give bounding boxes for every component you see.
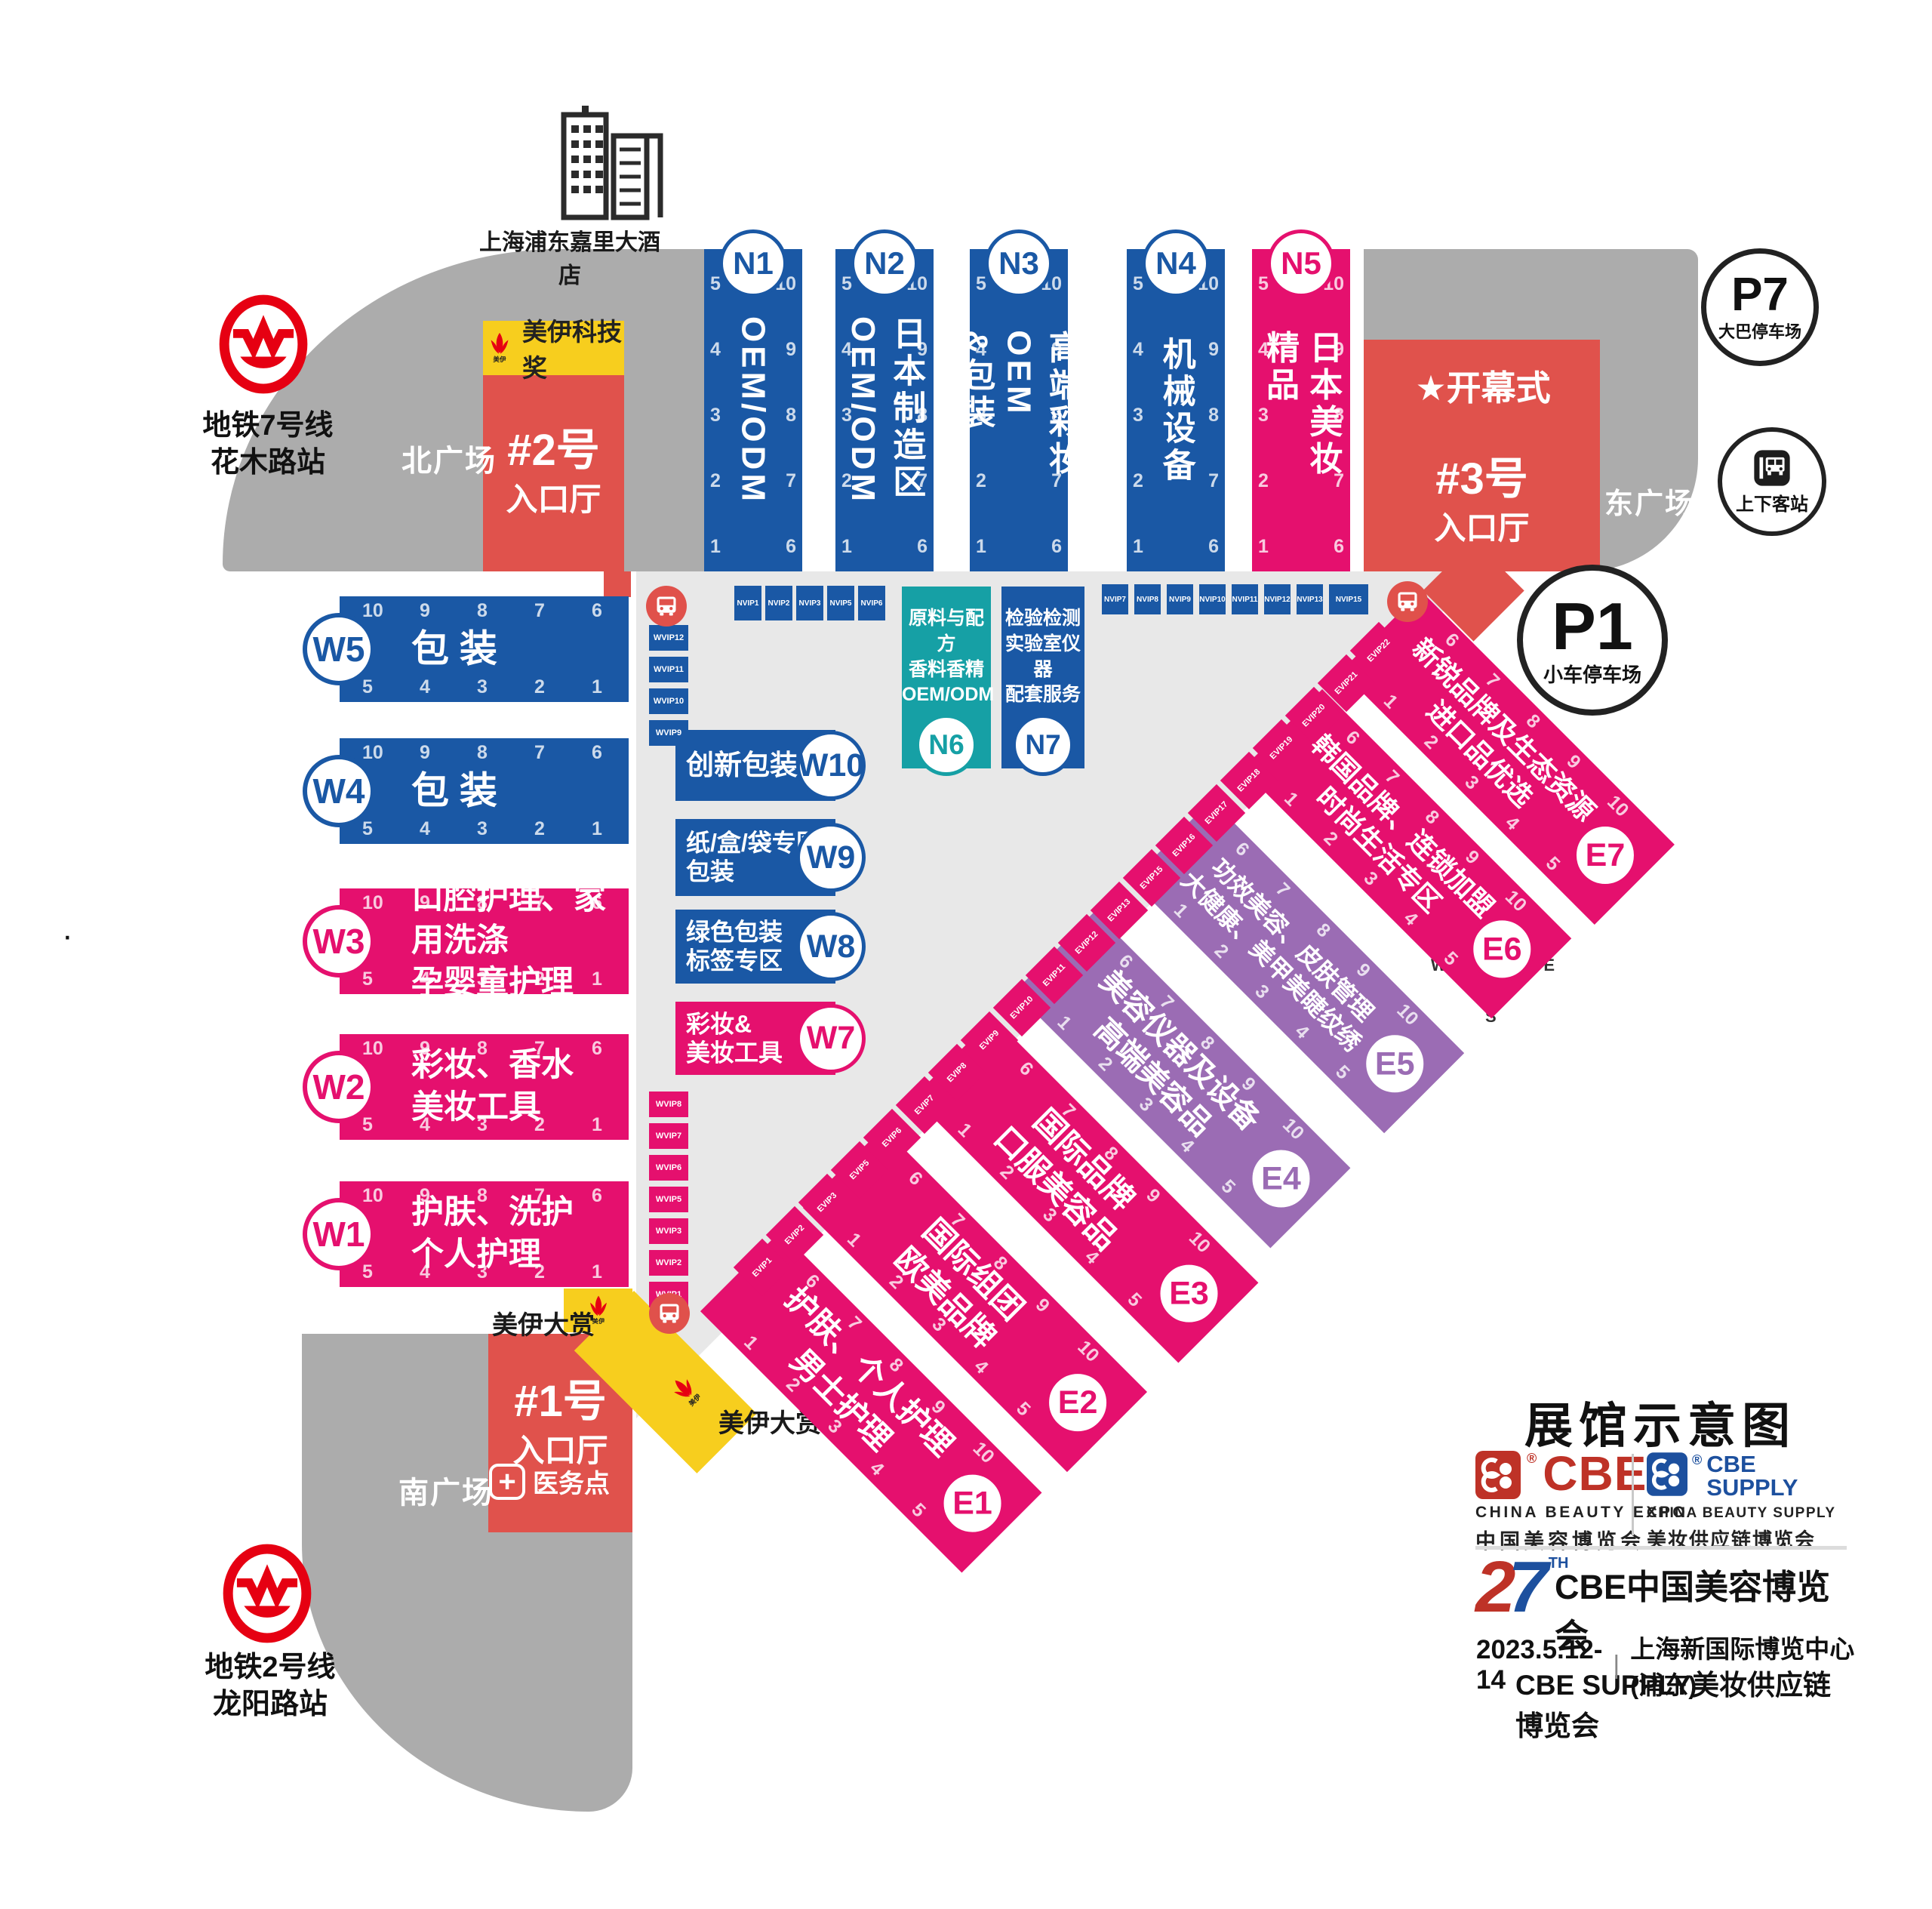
gate-number: 1 [1279,788,1302,811]
entrance-3-number: #3号 [1364,457,1600,503]
logo-divider [1632,1454,1634,1535]
gate-number: 8 [1420,806,1443,829]
hall-E6-badge: E6 [1469,916,1534,981]
hall-E1-badge: E1 [940,1471,1005,1536]
hall-E2-badge: E2 [1045,1370,1110,1435]
vip-NVIP5: NVIP5 [827,586,854,620]
gate-number: 9 [1334,339,1344,361]
gate-number: 8 [1312,919,1334,942]
gate-number: 5 [1541,852,1564,875]
gate-number: 1 [592,1114,602,1136]
gate-number: 9 [420,742,430,764]
hall-N1-label-line: OEM/ODM [731,316,774,504]
gate-number: 3 [976,405,986,426]
hall-W8-label: 绿色包装标签专区 [686,918,783,976]
gate-number: 1 [592,676,602,698]
gate-number: 2 [1210,940,1232,962]
hall-W1-label-line: 个人护理 [411,1234,574,1276]
hall-W3-label: 口腔护理、家用洗涤孕婴童护理 [411,878,629,1005]
hall-E3-badge: E3 [1157,1261,1222,1326]
parking-p7-code: P7 [1731,272,1789,319]
gate-number: 7 [917,470,928,492]
hall-W5-label-line: 包 装 [411,625,497,674]
gate-number: 3 [1251,981,1273,1003]
entrance-hall-2: #2号 入口厅 [483,375,624,571]
hall-N5-label-line: 日本美妆精品 [1258,330,1344,491]
meiyi-award-label: 美伊科技奖 [522,312,624,384]
gate-number: 2 [710,470,721,492]
hall-E7-badge: E7 [1573,823,1638,888]
gate-number: 6 [917,536,928,558]
gate-number: 4 [1258,339,1269,361]
vip-NVIP3: NVIP3 [796,586,823,620]
hall-W8-badge: W8 [796,912,866,981]
north-plaza-label: 北广场 [401,436,497,480]
metro-line7-line: 地铁7号线 [170,408,366,445]
gate-number: 4 [841,339,852,361]
hall-E4-badge: E4 [1248,1147,1313,1212]
hall-W8-label-line: 标签专区 [686,947,783,975]
vip-WVIP11: WVIP11 [649,657,688,682]
gate-number: 3 [710,405,721,426]
hall-W7-label: 彩妆&美妆工具 [686,1009,783,1067]
gate-number: 5 [1331,1061,1353,1084]
gate-number: 1 [841,536,852,558]
hall-N4-label: 机械设备 [1154,337,1197,485]
hall-W4-label: 包 装 [411,767,497,816]
shuttle-bus-icon [1387,581,1428,622]
hall-W2-label-line: 彩妆、香水 [411,1045,574,1087]
hall-N4-badge: N4 [1142,229,1210,297]
hall-W10: 创新包装W10 [675,730,835,801]
hall-N3: 高端彩妆OEM&包装54321109876N3 [970,249,1068,571]
gate-number: 4 [1500,812,1523,835]
gate-number: 10 [362,892,383,914]
gate-number: 5 [1133,273,1143,295]
gate-number: 7 [534,742,545,764]
east-plaza-label: 东广场 [1604,480,1695,522]
hall-N7-label-line: 检验检测 [1001,606,1084,632]
gate-number: 1 [1258,536,1269,558]
hall-W4-badge: W4 [303,755,375,827]
hall-N1: OEM/ODM54321109876N1 [704,249,802,571]
gate-number: 4 [1291,1021,1313,1043]
entrance-2-number: #2号 [483,428,624,474]
gate-number: 6 [1440,629,1463,651]
vip-WVIP9: WVIP9 [649,720,688,746]
entrance-2-label: 入口厅 [483,474,624,520]
hall-W3: 10987654321口腔护理、家用洗涤孕婴童护理W3 [340,888,629,994]
gate-number: 5 [1439,947,1462,970]
parking-p7-label: 大巴停车场 [1718,319,1801,343]
gate-number: 9 [1460,846,1483,869]
gate-number: 8 [1051,405,1062,426]
vip-NVIP1: NVIP1 [734,586,761,620]
cbe-supply-logo: ® CBE SUPPLY CHINA BEAUTY SUPPLY 美妆供应链博览… [1647,1452,1836,1553]
gate-number: 10 [362,600,383,622]
vip-NVIP2: NVIP2 [765,586,792,620]
hall-N2-label: 日本制造区OEM/ODM [841,316,928,504]
hall-N2-badge: N2 [851,229,918,297]
vip-NVIP7: NVIP7 [1102,584,1128,614]
gate-number: 6 [1341,726,1364,749]
hall-E5-badge: E5 [1362,1031,1427,1096]
pickup-label: 上下客站 [1736,489,1808,516]
medical-cross-icon: + [489,1464,525,1500]
vip-WVIP3: WVIP3 [649,1218,688,1244]
gate-number: 6 [1051,536,1062,558]
metro-line7-station: 花木路站 [170,445,366,482]
gate-number: 1 [976,536,986,558]
gate-number: 3 [477,818,488,840]
hall-W1-badge: W1 [303,1198,375,1270]
hall-W1-label-line: 护肤、洗护 [411,1192,574,1234]
gate-number: 5 [710,273,721,295]
hall-N6-label-line: 香料香精 [902,657,991,683]
vip-WVIP12: WVIP12 [649,625,688,651]
edition-digit-7: 7 [1508,1547,1548,1627]
entrance-3-label: 入口厅 [1364,503,1600,549]
gate-number: 6 [1334,536,1344,558]
hall-W4: 10987654321包 装W4 [340,738,629,844]
gate-number: 2 [1258,470,1269,492]
gate-number: 9 [1208,339,1219,361]
gate-number: 8 [917,405,928,426]
parking-p1-code: P1 [1552,593,1633,660]
hall-N6-label-line: OEM/ODM [902,682,991,708]
hotel-icon [525,106,668,226]
hall-N2: 日本制造区OEM/ODM54321109876N2 [835,249,934,571]
hall-W9-badge: W9 [796,823,866,892]
gate-number: 6 [786,536,796,558]
medical-point: + 医务点 [489,1463,610,1500]
hall-W10-label: 创新包装 [686,749,798,782]
hotel-label: 上海浦东嘉里大酒店 [475,223,664,290]
hall-W8-label-line: 绿色包装 [686,918,783,947]
hall-N6-label-line: 原料与配方 [902,606,991,657]
vip-NVIP6: NVIP6 [858,586,885,620]
gate-number: 4 [420,818,430,840]
hall-W2-label: 彩妆、香水美妆工具 [411,1045,574,1129]
gate-number: 9 [420,600,430,622]
hall-W8: 绿色包装标签专区W8 [675,910,835,984]
gate-number: 3 [1460,771,1483,794]
gate-number: 7 [1208,470,1219,492]
hall-N7-label: 检验检测实验室仪器配套服务 [1001,606,1084,708]
gate-number: 2 [1133,470,1143,492]
hall-W7-badge: W7 [796,1004,866,1073]
gate-number: 2 [841,470,852,492]
gate-number: 5 [362,1261,373,1283]
vip-NVIP15: NVIP15 [1329,584,1368,614]
hall-N5: 日本美妆精品54321109876N5 [1252,249,1350,571]
gate-number: 4 [710,339,721,361]
vip-NVIP13: NVIP13 [1297,584,1323,614]
gate-number: 3 [1359,867,1382,890]
hall-W7-label-line: 彩妆& [686,1009,783,1038]
gate-number: 5 [976,273,986,295]
gate-number: 2 [534,676,545,698]
hall-N5-badge: N5 [1267,229,1335,297]
gate-number: 1 [1169,900,1192,922]
hall-N4-label-line: 机械设备 [1154,337,1197,485]
gate-number: 2 [534,818,545,840]
hall-N7: 检验检测实验室仪器配套服务N7 [1001,587,1084,768]
gate-number: 7 [1051,470,1062,492]
vip-WVIP5: WVIP5 [649,1187,688,1212]
gate-number: 5 [841,273,852,295]
gate-number: 4 [420,676,430,698]
cbe-supply-logo-mark [1647,1452,1687,1496]
gate-number: 8 [1208,405,1219,426]
gate-number: 5 [362,1114,373,1136]
gate-number: 4 [1399,907,1422,930]
gate-number: 1 [592,1261,602,1283]
metro-line2-label: 地铁2号线 龙阳路站 [172,1649,368,1724]
entrance-2-arrow [604,571,631,597]
gate-number: 3 [477,676,488,698]
gate-number: 1 [592,818,602,840]
hall-N4: 机械设备54321109876N4 [1127,249,1225,571]
gate-number: 1 [1133,536,1143,558]
gate-number: 6 [1208,536,1219,558]
hall-W1-label: 护肤、洗护个人护理 [411,1192,574,1276]
gate-number: 8 [786,405,796,426]
venue-map: #2号 入口厅 #3号 入口厅 ★开幕式 #1号 入口厅 美伊 美伊科技奖 美伊… [0,0,1932,1909]
gate-number: 8 [1334,405,1344,426]
hall-N7-badge: N7 [1012,714,1074,776]
gate-number: 9 [1352,959,1374,982]
hall-N6: 原料与配方香料香精OEM/ODMN6 [902,587,991,768]
cbe-supply-subtitle-en: CHINA BEAUTY SUPPLY [1647,1505,1836,1522]
cbe-supply-word-1: CBE [1706,1452,1798,1476]
hall-W1: 10987654321护肤、洗护个人护理W1 [340,1181,629,1287]
hall-N1-badge: N1 [719,229,787,297]
gate-number: 8 [477,600,488,622]
shuttle-icon [1752,448,1792,488]
south-plaza-label: 南广场 [398,1468,494,1512]
gate-number: 2 [1420,731,1442,753]
gate-number: 6 [592,600,602,622]
gate-number: 9 [1051,339,1062,361]
gate-number: 4 [1133,339,1143,361]
metro-line7-label: 地铁7号线 花木路站 [170,408,366,482]
hall-N3-label-line: 高端彩妆OEM [997,330,1083,491]
hall-W7-label-line: 美妆工具 [686,1039,783,1067]
gate-number: 2 [976,470,986,492]
gate-number: 8 [1521,710,1544,733]
cbe-reg-mark: ® [1527,1451,1537,1467]
parking-p7: P7 大巴停车场 [1701,248,1819,366]
gate-number: 3 [1258,405,1269,426]
vip-NVIP9: NVIP9 [1167,584,1193,614]
gate-number: 7 [786,470,796,492]
parking-p1: P1 小车停车场 [1517,565,1668,716]
meiyi-tech-award-badge: 美伊 美伊科技奖 [483,321,624,375]
gate-number: 7 [1334,470,1344,492]
hall-N6-label: 原料与配方香料香精OEM/ODM [902,606,991,708]
vip-WVIP2: WVIP2 [649,1250,688,1276]
gate-number: 10 [362,1038,383,1060]
cbe-supply-word: CBE SUPPLY [1706,1452,1798,1499]
vip-WVIP7: WVIP7 [649,1123,688,1149]
hall-W9: 纸/盒/袋专区包装W9 [675,819,835,896]
date-venue-divider: | [1613,1651,1620,1680]
hall-W10-label-line: 创新包装 [686,749,798,782]
hall-W10-badge: W10 [796,731,866,800]
pickup-dropoff-station: 上下客站 [1718,427,1826,536]
cbe-supply-reg-mark: ® [1692,1452,1702,1468]
gate-number: 10 [362,742,383,764]
gate-number: 3 [1133,405,1143,426]
vip-WVIP8: WVIP8 [649,1092,688,1117]
metro-logo-icon [219,294,308,398]
gate-number: 5 [362,968,373,990]
cbe-supply-word-2: SUPPLY [1706,1476,1798,1499]
gate-number: 9 [917,339,928,361]
gate-number: 6 [592,742,602,764]
gate-number: 9 [786,339,796,361]
hall-W2: 10987654321彩妆、香水美妆工具W2 [340,1034,629,1140]
gate-number: 6 [592,1038,602,1060]
expo-date: 2023.5.12-14 [1476,1635,1602,1695]
gate-number: 1 [710,536,721,558]
gate-number: 7 [534,600,545,622]
hall-N7-label-line: 实验室仪器 [1001,632,1084,683]
gate-number: 10 [362,1185,383,1207]
svg-text:美伊: 美伊 [493,355,506,363]
hall-W3-label-line: 口腔护理、家用洗涤 [411,878,629,962]
stray-dot: · [62,917,73,955]
hall-W3-label-line: 孕婴童护理 [411,962,629,1005]
gate-number: 5 [362,676,373,698]
metro-line2-line: 地铁2号线 [172,1649,368,1686]
gate-number: 7 [1380,766,1403,789]
gate-number: 1 [1379,691,1401,713]
meiyi-grand-label: 美伊大赏 [492,1304,595,1341]
shuttle-bus-icon [649,1293,690,1334]
parking-p1-label: 小车停车场 [1543,660,1641,688]
vip-NVIP12: NVIP12 [1264,584,1291,614]
hall-W7: 彩妆&美妆工具W7 [675,1002,835,1075]
gate-number: 6 [1230,838,1253,861]
opening-ceremony-label: ★开幕式 [1374,361,1592,411]
cbe-logo-mark [1475,1451,1521,1499]
gate-number: 4 [976,339,986,361]
vip-WVIP10: WVIP10 [649,688,688,714]
hall-W2-badge: W2 [303,1051,375,1123]
hall-W5-badge: W5 [303,613,375,685]
gate-number: 8 [477,742,488,764]
meiyi-logo-icon: 美伊 [483,330,516,367]
gate-number: 7 [1271,879,1294,901]
gate-number: 5 [1258,273,1269,295]
gate-number: 5 [362,818,373,840]
gate-number: 3 [841,405,852,426]
gate-number: 7 [1481,670,1503,692]
gate-number: 2 [1319,827,1342,850]
vip-NVIP8: NVIP8 [1134,584,1161,614]
hall-W5-label: 包 装 [411,625,497,674]
hall-N1-label: OEM/ODM [731,316,774,504]
gate-number: 6 [592,1185,602,1207]
vip-NVIP11: NVIP11 [1232,584,1258,614]
hall-N5-label: 日本美妆精品 [1258,330,1344,491]
metro-logo-icon [223,1544,312,1647]
hall-N7-label-line: 配套服务 [1001,682,1084,708]
hall-W2-label-line: 美妆工具 [411,1087,574,1129]
expo-venue: 上海新国际博览中心(浦东) [1630,1629,1857,1701]
hall-N3-label: 高端彩妆OEM&包装 [954,330,1084,491]
vip-WVIP6: WVIP6 [649,1155,688,1181]
hall-W5: 10987654321包 装W5 [340,596,629,702]
gate-number: 9 [1562,750,1585,773]
medical-label: 医务点 [533,1463,610,1500]
hall-N3-badge: N3 [985,229,1053,297]
vip-NVIP10: NVIP10 [1199,584,1226,614]
shuttle-bus-icon [646,586,687,627]
hall-W3-badge: W3 [303,905,375,978]
hall-N6-badge: N6 [915,714,977,776]
hall-W4-label-line: 包 装 [411,767,497,816]
metro-line2-station: 龙阳路站 [172,1686,368,1723]
